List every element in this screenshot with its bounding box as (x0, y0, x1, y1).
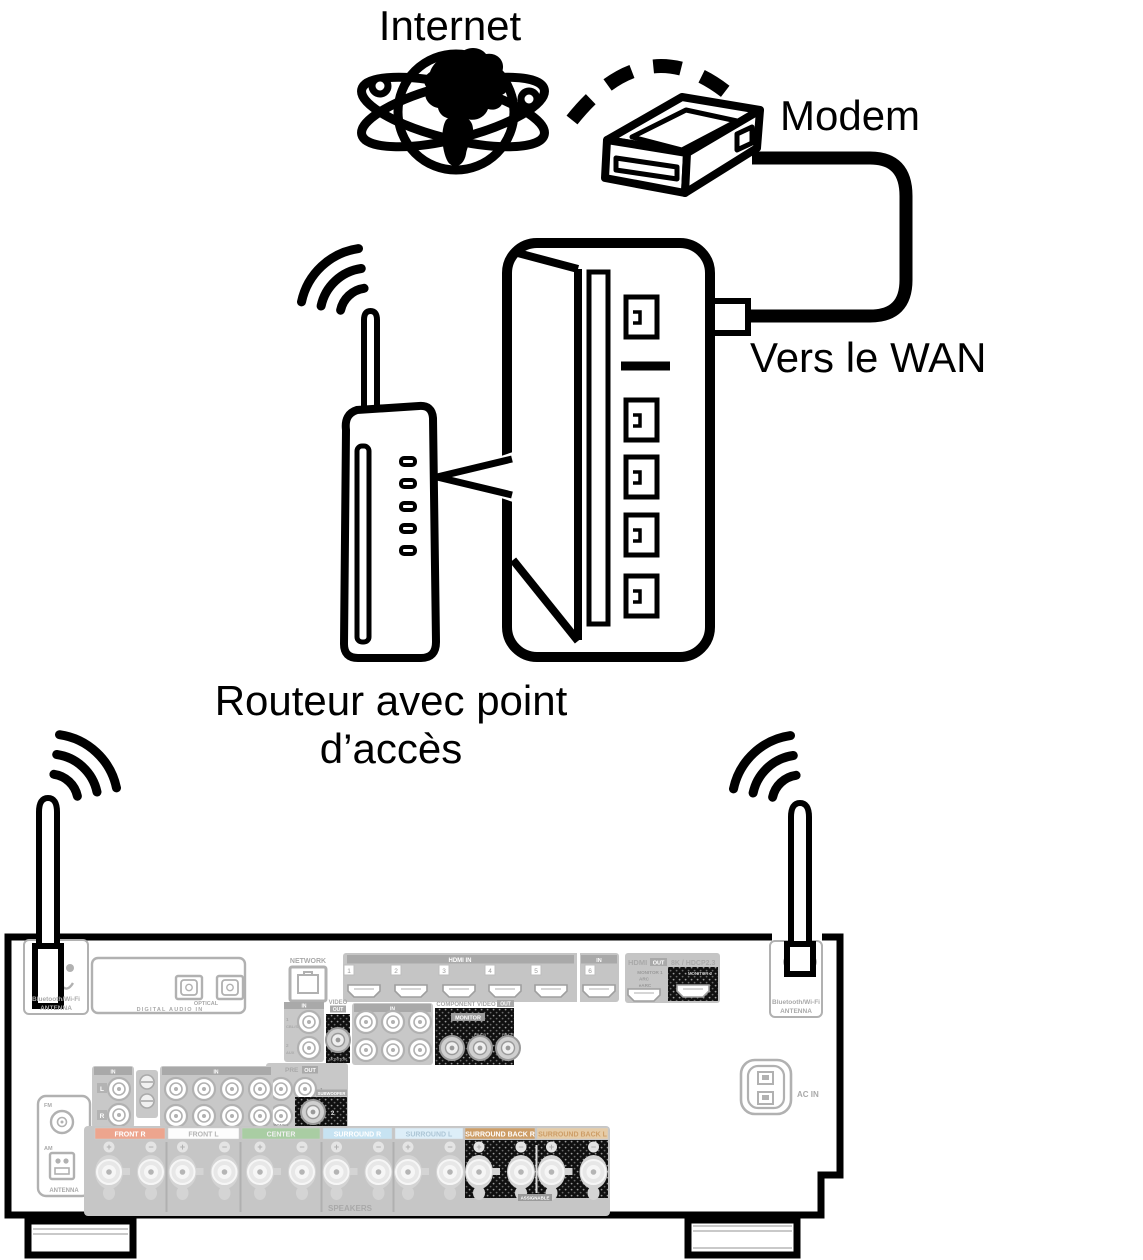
hdmi-port-number: 3 (442, 968, 446, 975)
rca-jack (249, 1078, 271, 1100)
satellite-dot (521, 91, 537, 107)
rca-jack (382, 1039, 404, 1061)
in-band-label: IN (214, 1069, 219, 1075)
rca-jack (382, 1011, 404, 1033)
am-terminal (50, 1153, 74, 1179)
rca-jack (193, 1105, 215, 1127)
hdmi-in-port (489, 985, 521, 997)
pre-out-block: PRE OUT 1 ZONE2 SUBWOOFER 2 (266, 1063, 348, 1128)
pre-out-out-label: OUT (304, 1068, 316, 1074)
channel-chip-label: SURROUND R (334, 1132, 381, 1139)
modem-label: Modem (780, 92, 920, 139)
rca-jack (165, 1105, 187, 1127)
hdmi-port-number: 4 (488, 968, 492, 975)
assignable-label: ASSIGNABLE (521, 1195, 550, 1200)
component-jack-y (440, 1036, 464, 1060)
internet-label: Internet (379, 2, 522, 49)
speakers-panel: FRONT R FRONT L CENTER SURROUND R SURROU… (84, 1126, 610, 1216)
right-channel-label: R (100, 1113, 105, 1120)
speakers-label: SPEAKERS (328, 1204, 373, 1213)
rca-jack (108, 1078, 130, 1100)
lan-port-3 (626, 515, 657, 555)
channel-chip-label: SURROUND BACK L (538, 1132, 608, 1139)
bt-wifi-antenna-label: ANTENNA (780, 1008, 812, 1015)
router-label-line1: Routeur avec point (215, 677, 568, 724)
pre-out-jack (294, 1078, 316, 1100)
rca-jack (108, 1104, 130, 1126)
channel-chip-label: SURROUND BACK R (465, 1132, 535, 1139)
rca-jack (298, 1011, 320, 1033)
left-channel-label: L (100, 1086, 104, 1093)
video-label: VIDEO (329, 1000, 348, 1006)
channel-chip-label: FRONT R (114, 1132, 145, 1139)
bt-wifi-antenna-label: Bluetooth/Wi-Fi (32, 996, 80, 1003)
subwoofer-label: SUBWOOFER (318, 1091, 346, 1096)
rca-jack (249, 1105, 271, 1127)
earc-label: eARC (639, 983, 652, 988)
aux-label: AUX (286, 1050, 295, 1055)
monitor2-label: MONITOR 2 (688, 971, 713, 976)
pre-out-jack (270, 1078, 292, 1100)
rca-jack (221, 1105, 243, 1127)
antenna-rod (791, 803, 809, 944)
hdmi-in-block: HDMI IN IN 1 2 3 4 5 6 (343, 953, 619, 1002)
hdmi-in-label: HDMI IN (449, 958, 472, 964)
in-band-label: IN (596, 958, 602, 964)
am-label: AM (44, 1146, 53, 1152)
receiver-foot-left (28, 1221, 133, 1255)
input1-num: 1 (286, 1017, 289, 1022)
audio-in-grid-small: IN (352, 1003, 433, 1065)
rca-jack (409, 1011, 431, 1033)
arc-label: ARC (639, 977, 650, 982)
channel-chip-label: CENTER (267, 1132, 296, 1139)
antenna-mount (787, 944, 813, 974)
manual-network-diagram-page: + − Internet Modem Vers le WAN (0, 0, 1143, 1260)
rca-jack (193, 1078, 215, 1100)
wan-port (626, 297, 657, 337)
channel-chip-label: FRONT L (188, 1132, 219, 1139)
lan-port-1 (626, 400, 657, 440)
network-block: NETWORK (290, 958, 326, 1001)
hdmi-in-port (443, 985, 475, 997)
receiver-foot-right (688, 1220, 797, 1255)
tuner-antenna-block: FM AM ANTENNA (38, 1096, 90, 1196)
antenna-rod (39, 798, 57, 946)
to-wan-label: Vers le WAN (750, 334, 987, 381)
hdmi-in-port (535, 985, 567, 997)
analog-lr-block: IN L R (92, 1066, 134, 1128)
hdmi-out-block: HDMI OUT 8K / HDCP2.3 MONITOR 1 ARC eARC… (625, 953, 720, 1003)
hdmi-in-port (348, 985, 380, 997)
hdmi-port-number: 2 (394, 968, 398, 975)
rca-jack (355, 1039, 377, 1061)
component-jack-pb (468, 1036, 492, 1060)
pre-label: PRE (285, 1067, 299, 1074)
hdmi-port-number: 5 (534, 968, 538, 975)
video-out-label: OUT (333, 1007, 344, 1013)
rca-jack (409, 1039, 431, 1061)
hdmi-port-number: 6 (588, 968, 592, 975)
rca-jack (221, 1078, 243, 1100)
satellite-dot (372, 78, 388, 94)
bt-wifi-antenna-label: Bluetooth/Wi-Fi (772, 999, 820, 1006)
component-video-label: COMPONENT VIDEO (436, 1002, 496, 1008)
antenna-label: ANTENNA (49, 1188, 79, 1194)
in-band-label: IN (302, 1004, 307, 1010)
video-out-jack (326, 1028, 350, 1052)
ground-screw-strip (136, 1070, 158, 1118)
lan-port-4 (626, 576, 657, 616)
optical-port-2 (217, 976, 243, 999)
subwoofer-jack (301, 1100, 325, 1124)
hdmi-out-hdmi-label: HDMI (628, 958, 647, 967)
fm-label: FM (44, 1103, 52, 1109)
monitor1-label: MONITOR 1 (637, 970, 663, 975)
hdmi-port-number: 1 (347, 968, 351, 975)
component-monitor-label: MONITOR (455, 1015, 481, 1021)
speaker-channel-chips: FRONT R FRONT L CENTER SURROUND R SURROU… (95, 1128, 608, 1139)
analog-input-column: IN 1 CBL/SAT 2 AUX (284, 1002, 324, 1062)
bt-wifi-antenna-label: ANTENNA (40, 1005, 72, 1012)
hdmi-out-spec-label: 8K / HDCP2.3 (671, 960, 715, 967)
component-jack-pr (496, 1036, 520, 1060)
channel-chip-label: SURROUND L (406, 1132, 453, 1139)
audio-in-grid-large: IN (160, 1066, 273, 1128)
network-label: NETWORK (290, 958, 326, 965)
hdmi-in-port (395, 985, 427, 997)
component-out-label: OUT (500, 1002, 511, 1008)
component-video-out-block: COMPONENT VIDEO OUT MONITOR Y PB/CB PR/C… (435, 1000, 520, 1065)
router-vent-slot (589, 272, 608, 624)
lan-port-2 (626, 457, 657, 497)
input2-num: 2 (286, 1043, 289, 1048)
bt-wifi-icon-dot (66, 964, 74, 972)
in-band-label: IN (111, 1069, 116, 1075)
hdmi-in-port (583, 985, 615, 997)
video-monitor-label: MONITOR (329, 1058, 347, 1062)
hdmi-out-port-2 (677, 985, 709, 997)
hdmi-out-port-1 (628, 989, 660, 1001)
router-label-line2: d’accès (320, 725, 462, 772)
rca-jack (355, 1011, 377, 1033)
optical-port-1 (176, 976, 202, 999)
rca-jack (298, 1037, 320, 1059)
digital-audio-in-block: OPTICAL DIGITAL AUDIO IN (92, 958, 245, 1013)
router-antenna (364, 311, 377, 412)
ac-in-label: AC IN (797, 1090, 819, 1099)
digital-audio-in-label: DIGITAL AUDIO IN (137, 1007, 204, 1013)
diagram-canvas: + − Internet Modem Vers le WAN (0, 0, 1143, 1260)
hdmi-out-out-label: OUT (653, 960, 665, 966)
rca-jack (165, 1078, 187, 1100)
